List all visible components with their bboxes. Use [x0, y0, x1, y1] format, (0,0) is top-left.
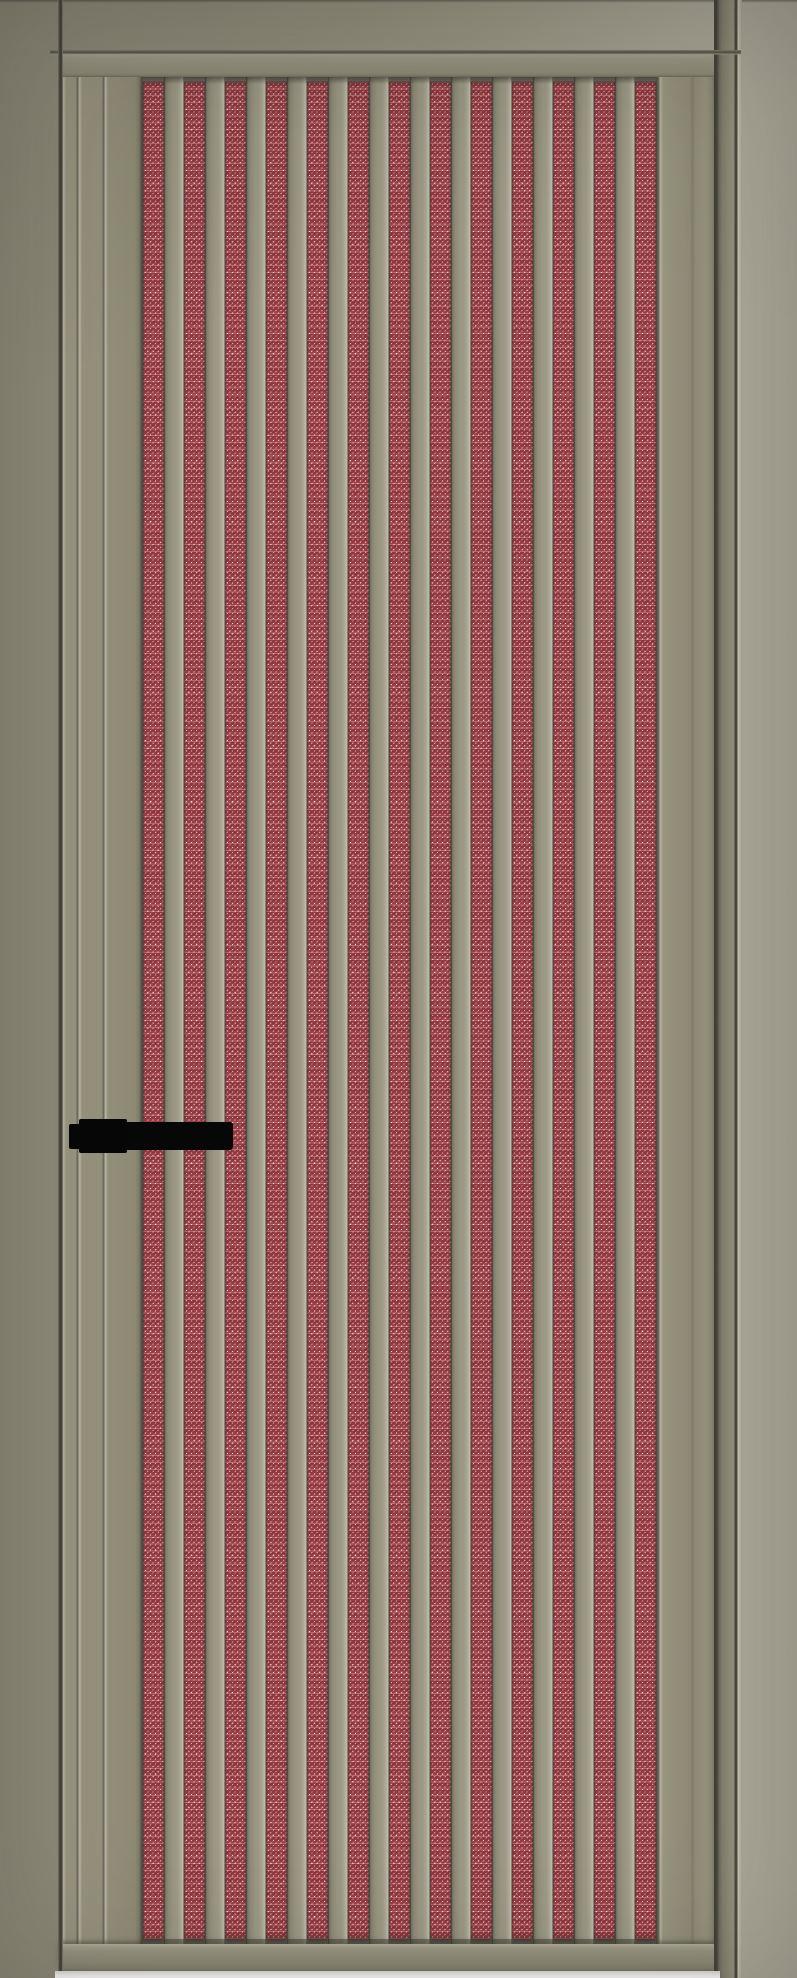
slat: [533, 77, 553, 1948]
slat: [574, 77, 594, 1948]
mesh-stripe: [635, 82, 656, 1939]
mesh-stripe: [184, 82, 205, 1939]
slat: [492, 77, 512, 1948]
mesh-stripe: [553, 82, 574, 1939]
slat: [451, 77, 471, 1948]
mesh-stripe: [307, 82, 328, 1939]
slat: [164, 77, 184, 1948]
door-top-rail: [58, 54, 717, 77]
mesh-stripe: [266, 82, 287, 1939]
floor-strip: [55, 1971, 720, 1978]
mesh-stripe: [225, 82, 246, 1939]
door-right-edge-profile: [714, 0, 742, 1978]
slat: [410, 77, 430, 1948]
door-handle: [69, 1119, 233, 1153]
handle-plate: [79, 1119, 127, 1153]
slat: [205, 77, 225, 1948]
mesh-top-shadow: [143, 77, 656, 84]
leaf-top-seam-line: [50, 50, 741, 55]
handle-lever: [126, 1122, 233, 1150]
door-right-stile: [656, 54, 714, 1978]
mesh-panel: [143, 77, 656, 1948]
door-product-photo: { "scene": { "subject": "full-height int…: [0, 0, 797, 1978]
slat: [328, 77, 348, 1948]
mesh-stripe: [430, 82, 451, 1939]
slat: [287, 77, 307, 1948]
slat: [369, 77, 389, 1948]
mesh-stripe: [389, 82, 410, 1939]
frame-leaf-gap: [58, 0, 63, 1978]
slat: [615, 77, 635, 1948]
mesh-stripe: [471, 82, 492, 1939]
mesh-stripe: [348, 82, 369, 1939]
door-bottom-rail: [58, 1944, 717, 1972]
slat: [246, 77, 266, 1948]
mesh-stripe: [512, 82, 533, 1939]
mesh-stripe: [143, 82, 164, 1939]
mesh-stripe: [594, 82, 615, 1939]
door-left-stile: [63, 54, 143, 1978]
